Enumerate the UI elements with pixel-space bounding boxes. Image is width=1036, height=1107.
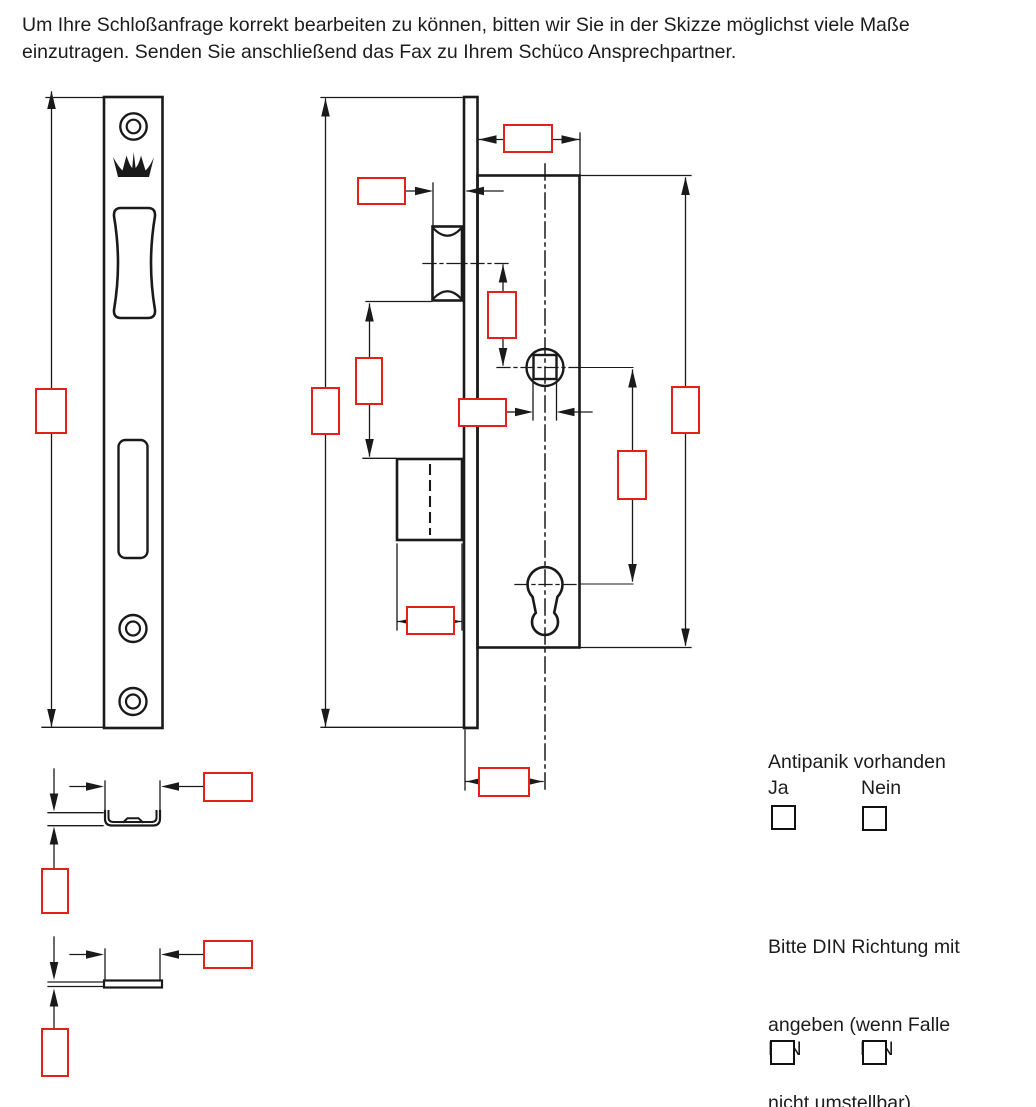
- crown-logo-icon: [113, 152, 154, 177]
- screw-hole-bottom: [120, 688, 147, 715]
- arrow-down: [47, 709, 56, 727]
- antipanik-ja-checkbox[interactable]: [771, 805, 796, 830]
- lower-cutout: [119, 440, 148, 558]
- screw-hole-top: [120, 113, 146, 139]
- dim-field-u-profile-height[interactable]: [41, 868, 69, 914]
- antipanik-option-ja-label: Ja: [768, 775, 789, 801]
- dim-field-spindle-square[interactable]: [458, 398, 507, 427]
- flat-profile-section: [48, 937, 203, 1028]
- dim-field-latch-protrusion[interactable]: [357, 177, 406, 205]
- dim-field-spindle-to-cylinder[interactable]: [617, 450, 647, 500]
- u-profile-section: [48, 769, 203, 868]
- dim-field-latch-to-spindle[interactable]: [487, 291, 517, 339]
- dim-field-backset[interactable]: [478, 767, 530, 797]
- dim-field-flat-profile-width[interactable]: [203, 940, 253, 969]
- arrow-up: [47, 91, 56, 109]
- latch-cutout: [114, 208, 155, 318]
- fax-form-page: Um Ihre Schloßanfrage korrekt bearbeiten…: [0, 0, 1036, 1107]
- dim-field-case-height[interactable]: [671, 386, 700, 434]
- dim-field-block-width[interactable]: [406, 606, 455, 635]
- dim-field-overall-length[interactable]: [311, 387, 340, 435]
- antipanik-title: Antipanik vorhanden: [768, 749, 946, 775]
- dim-field-faceplate-length[interactable]: [35, 388, 67, 434]
- din-title-line-1: Bitte DIN Richtung mit: [768, 934, 960, 960]
- dim-field-latch-to-block[interactable]: [355, 357, 383, 405]
- din-rechts-checkbox[interactable]: [862, 1040, 887, 1065]
- antipanik-nein-checkbox[interactable]: [862, 806, 887, 831]
- dim-field-case-depth[interactable]: [503, 124, 553, 153]
- dim-field-flat-profile-height[interactable]: [41, 1028, 69, 1077]
- screw-hole-mid: [120, 615, 147, 642]
- antipanik-option-nein-label: Nein: [861, 775, 901, 801]
- din-links-checkbox[interactable]: [770, 1040, 795, 1065]
- dim-field-u-profile-width[interactable]: [203, 772, 253, 802]
